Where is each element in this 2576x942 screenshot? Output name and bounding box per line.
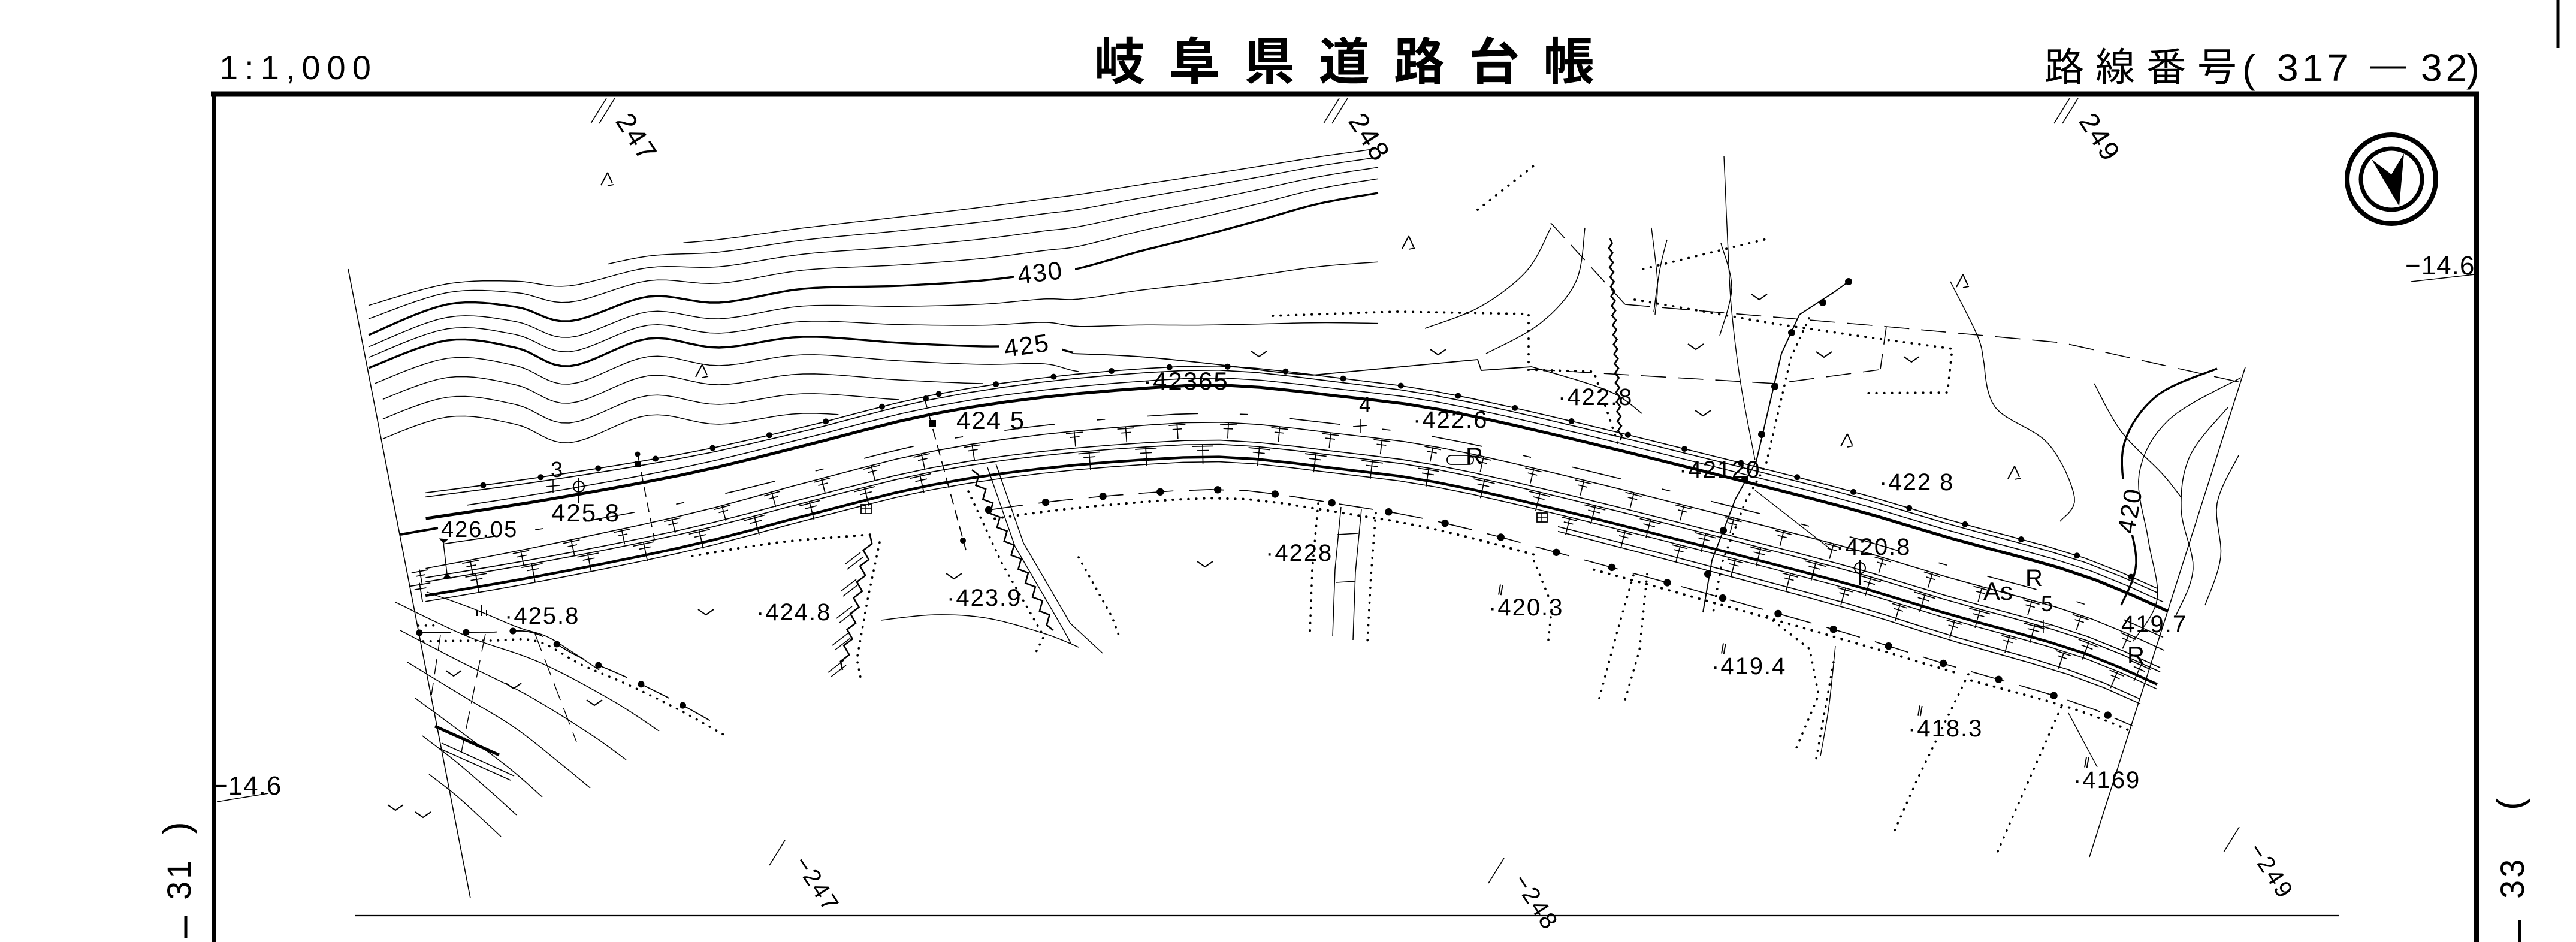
- svg-text:·422 8: ·422 8: [1879, 469, 1954, 496]
- svg-text:1:1,000: 1:1,000: [219, 49, 378, 86]
- svg-text:·422.6: ·422.6: [1413, 407, 1488, 433]
- svg-text:424 5: 424 5: [956, 406, 1025, 434]
- svg-text:—: —: [2370, 44, 2406, 84]
- svg-text:·42120: ·42120: [1679, 457, 1761, 483]
- svg-text:R: R: [1466, 443, 1483, 470]
- svg-text:·425.8: ·425.8: [505, 603, 579, 629]
- svg-text:3: 3: [551, 457, 563, 482]
- svg-text:·420.8: ·420.8: [1836, 534, 1911, 560]
- svg-text:426.05: 426.05: [441, 517, 518, 542]
- svg-text:·4169: ·4169: [2073, 767, 2140, 793]
- svg-text:·422.8: ·422.8: [1558, 384, 1633, 410]
- svg-text:31: 31: [160, 858, 198, 900]
- svg-text:·424.8: ·424.8: [756, 599, 831, 626]
- svg-text:430: 430: [1016, 256, 1064, 289]
- svg-text:419.7: 419.7: [2121, 611, 2187, 638]
- svg-text:32: 32: [2421, 46, 2471, 89]
- svg-text:4: 4: [1359, 393, 1371, 417]
- svg-text:): ): [2466, 46, 2480, 90]
- svg-text:): ): [156, 822, 198, 834]
- svg-text:317: 317: [2277, 46, 2352, 89]
- svg-text:R: R: [2025, 565, 2043, 591]
- svg-text:·423.9: ·423.9: [947, 585, 1022, 611]
- svg-text:·4228: ·4228: [1266, 540, 1333, 566]
- svg-text:−14.6: −14.6: [212, 771, 282, 801]
- svg-text:As: As: [1983, 577, 2013, 605]
- svg-text:425.8: 425.8: [551, 499, 620, 527]
- svg-text:5: 5: [2041, 591, 2053, 616]
- svg-text:33: 33: [2493, 857, 2531, 899]
- svg-text:·42365: ·42365: [1143, 367, 1229, 395]
- svg-text:(: (: [2242, 47, 2255, 91]
- svg-text:(: (: [2490, 798, 2531, 810]
- svg-text:R: R: [2127, 642, 2145, 669]
